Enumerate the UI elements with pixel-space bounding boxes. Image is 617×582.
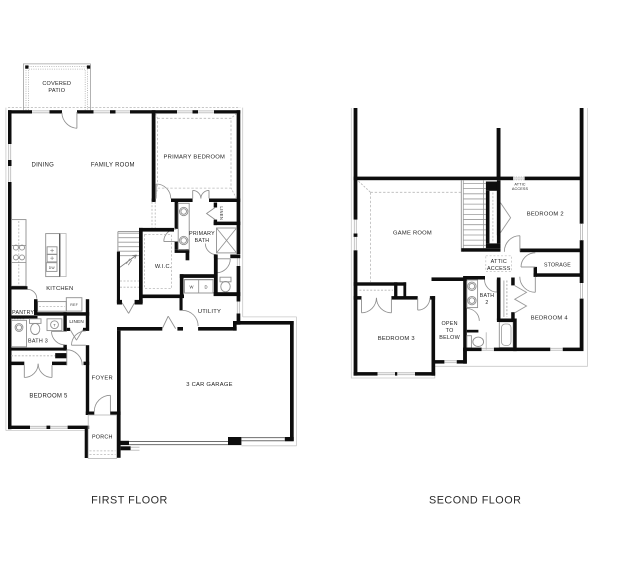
svg-text:BEDROOM 4: BEDROOM 4: [531, 316, 569, 322]
svg-text:ATTIC: ATTIC: [514, 182, 525, 186]
svg-text:W: W: [190, 285, 194, 290]
svg-text:3 CAR GARAGE: 3 CAR GARAGE: [186, 382, 233, 388]
svg-text:SECOND FLOOR: SECOND FLOOR: [429, 495, 521, 507]
svg-text:FIRST FLOOR: FIRST FLOOR: [91, 495, 168, 507]
svg-text:PRIMARY: PRIMARY: [189, 231, 215, 237]
svg-text:ACCESS: ACCESS: [512, 187, 529, 191]
svg-text:REF: REF: [70, 303, 78, 307]
svg-text:COVERED: COVERED: [42, 81, 71, 87]
svg-text:BATH: BATH: [195, 238, 210, 244]
svg-text:OPEN: OPEN: [441, 321, 457, 327]
svg-text:DW: DW: [49, 266, 56, 270]
svg-text:KITCHEN: KITCHEN: [46, 286, 73, 292]
svg-text:DINING: DINING: [32, 163, 55, 169]
svg-text:BEDROOM 5: BEDROOM 5: [29, 393, 68, 399]
svg-text:TO: TO: [446, 328, 454, 334]
svg-text:GAME ROOM: GAME ROOM: [393, 230, 432, 236]
svg-text:BELOW: BELOW: [439, 335, 460, 341]
svg-text:BEDROOM 3: BEDROOM 3: [378, 336, 415, 342]
svg-text:LINEN: LINEN: [69, 319, 84, 324]
svg-text:PANTRY: PANTRY: [12, 310, 34, 316]
svg-text:STORAGE: STORAGE: [544, 262, 571, 268]
svg-text:FOYER: FOYER: [92, 375, 113, 381]
svg-text:2: 2: [485, 300, 488, 306]
svg-text:D: D: [204, 285, 207, 290]
svg-text:ATTIC: ATTIC: [491, 259, 507, 265]
svg-text:FAMILY ROOM: FAMILY ROOM: [91, 163, 135, 169]
svg-text:BATH: BATH: [480, 293, 494, 299]
svg-text:UTILITY: UTILITY: [198, 309, 221, 315]
svg-text:BEDROOM 2: BEDROOM 2: [527, 212, 564, 218]
svg-text:LINEN: LINEN: [219, 206, 224, 220]
svg-text:PORCH: PORCH: [92, 434, 113, 440]
svg-text:PRIMARY BEDROOM: PRIMARY BEDROOM: [164, 155, 226, 161]
svg-text:PATIO: PATIO: [48, 88, 65, 94]
svg-text:W.I.C.: W.I.C.: [155, 264, 172, 270]
svg-text:BATH 3: BATH 3: [28, 338, 48, 344]
svg-text:ACCESS: ACCESS: [487, 266, 511, 272]
